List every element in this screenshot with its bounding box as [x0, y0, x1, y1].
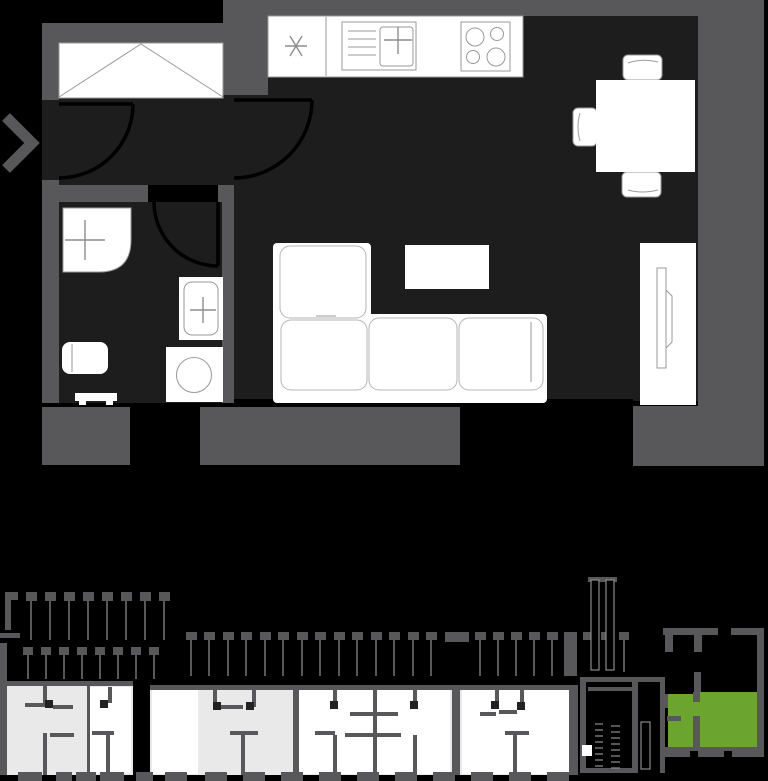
wall-bottom-band: [200, 407, 460, 465]
balcony-pier-wide: [445, 632, 469, 642]
floor-plan-page: [0, 0, 768, 781]
tv-sideboard: [640, 243, 696, 405]
wall-bathroom-top-left: [59, 185, 148, 202]
wall-below-bathroom: [42, 407, 130, 465]
washing-machine: [166, 347, 223, 402]
wall-bathroom-bottom-line: [42, 403, 234, 407]
selected-unit-living-room[interactable]: [700, 692, 757, 747]
elevator-cell: [582, 745, 592, 756]
balcony-pier-tall: [564, 632, 577, 676]
hall-doorway-floor: [222, 95, 234, 185]
wall-bathroom-right: [222, 185, 234, 405]
floor-plan-canvas: [0, 0, 768, 781]
entrance-threshold: [42, 100, 59, 180]
facade-piers: [18, 772, 569, 781]
neighbor-building-middle: [150, 685, 578, 775]
wall-top: [230, 0, 764, 16]
dining-table: [596, 80, 695, 172]
toilet: [62, 342, 108, 374]
washbasin: [179, 277, 223, 340]
wall-left-upper: [42, 23, 59, 100]
coffee-table: [405, 245, 489, 289]
wardrobe: [59, 43, 223, 98]
chair-top: [623, 55, 662, 80]
wall-bottom-right-block: [633, 406, 764, 466]
shower-tray: [63, 208, 131, 272]
chair-left: [573, 108, 597, 146]
wall-top-left: [42, 23, 228, 43]
wall-left-lower: [42, 180, 59, 407]
selected-unit-door-gap: [693, 702, 700, 716]
wall-right: [698, 16, 764, 406]
kitchen-counter: [268, 16, 523, 77]
detail-floor-plan: [6, 0, 764, 466]
chair-bottom: [622, 172, 661, 197]
